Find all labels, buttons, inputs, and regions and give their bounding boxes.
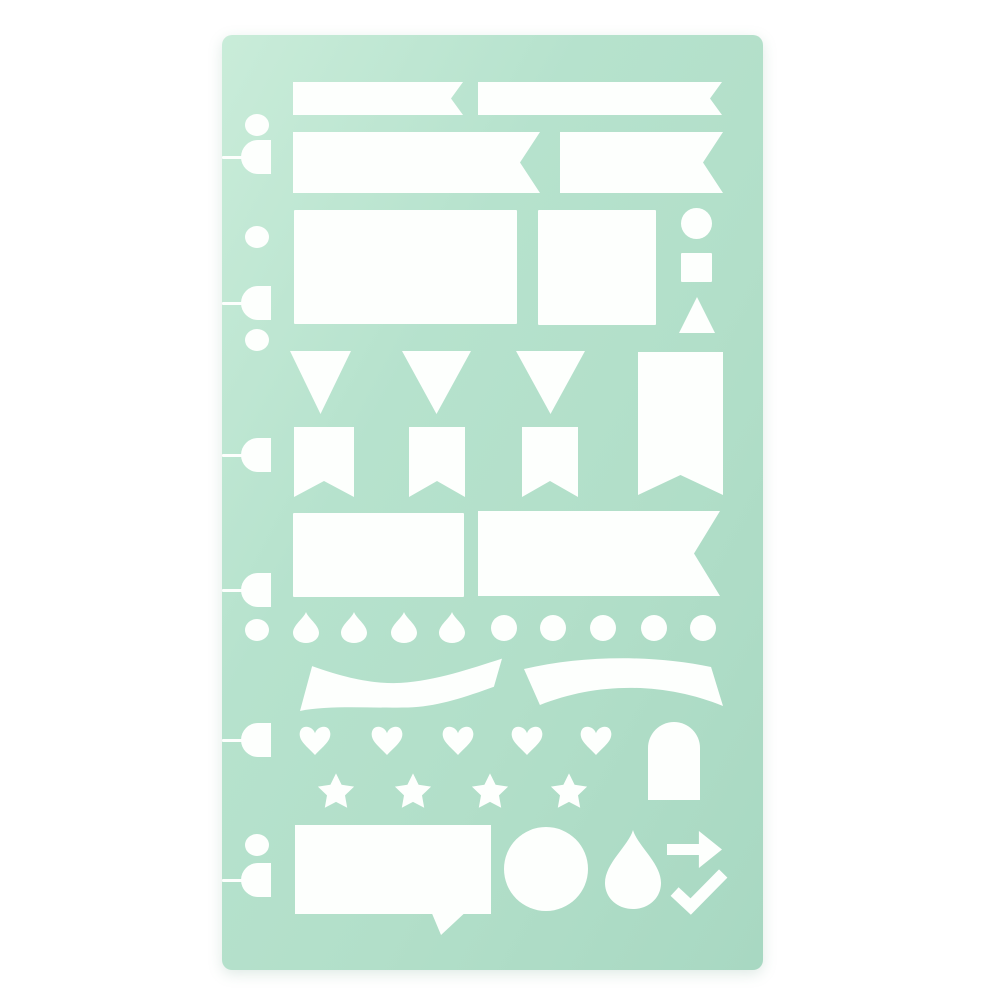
arrow-right-cutout bbox=[667, 831, 722, 868]
dot-1-cutout bbox=[491, 615, 517, 641]
binding-punch-circle-5 bbox=[245, 834, 269, 856]
binding-punch-circle-4 bbox=[245, 619, 269, 641]
banner-wide-right-cutout bbox=[560, 132, 723, 193]
dot-2-cutout bbox=[540, 615, 566, 641]
binding-punch-tab-6 bbox=[241, 863, 271, 897]
small-square-cutout bbox=[681, 253, 712, 282]
binding-punch-tab-4 bbox=[241, 573, 271, 607]
binding-punch-circle-1 bbox=[245, 114, 269, 136]
binding-punch-tab-3 bbox=[241, 438, 271, 472]
teardrop-small-3-cutout bbox=[391, 612, 417, 643]
pennant-triangle-1-cutout bbox=[290, 351, 351, 414]
binding-punch-tab-2 bbox=[241, 286, 271, 320]
banner-large-cutout bbox=[478, 511, 720, 596]
wave-ribbon-cutout bbox=[300, 657, 502, 711]
checkmark-cutout bbox=[674, 873, 723, 912]
teardrop-small-2-cutout bbox=[341, 612, 367, 643]
dot-3-cutout bbox=[590, 615, 616, 641]
swallowtail-flag-3-cutout bbox=[522, 427, 578, 497]
tall-swallowtail-flag-cutout bbox=[638, 352, 723, 495]
star-2-cutout bbox=[394, 773, 432, 809]
swallowtail-flag-2-cutout bbox=[409, 427, 465, 497]
dot-4-cutout bbox=[641, 615, 667, 641]
banner-wide-left-cutout bbox=[293, 132, 540, 193]
heart-2-cutout bbox=[370, 724, 404, 755]
binding-punch-circle-2 bbox=[245, 226, 269, 248]
small-circle-cutout bbox=[681, 208, 712, 239]
teardrop-small-4-cutout bbox=[439, 612, 465, 643]
teardrop-small-1-cutout bbox=[293, 612, 319, 643]
pennant-triangle-2-cutout bbox=[402, 351, 471, 414]
binding-punch-tab-1 bbox=[241, 140, 271, 174]
stencil-sheet bbox=[222, 35, 763, 970]
rectangle-medium-cutout bbox=[538, 210, 656, 325]
teardrop-large-cutout bbox=[605, 830, 661, 909]
arc-ribbon-cutout bbox=[524, 658, 723, 708]
binding-punch-tab-5 bbox=[241, 723, 271, 757]
circle-large-cutout bbox=[504, 827, 588, 911]
heart-1-cutout bbox=[298, 724, 332, 755]
product-photo bbox=[0, 0, 1000, 1000]
heart-3-cutout bbox=[441, 724, 475, 755]
swallowtail-flag-1-cutout bbox=[294, 427, 354, 497]
star-3-cutout bbox=[471, 773, 509, 809]
pennant-triangle-3-cutout bbox=[516, 351, 585, 414]
binding-punch-circle-3 bbox=[245, 329, 269, 351]
dot-5-cutout bbox=[690, 615, 716, 641]
banner-strip-left-cutout bbox=[293, 82, 463, 115]
banner-strip-right-cutout bbox=[478, 82, 722, 115]
arch-cutout bbox=[648, 722, 700, 800]
rectangle-large-cutout bbox=[294, 210, 517, 324]
rectangle-wide-cutout bbox=[293, 513, 464, 597]
heart-5-cutout bbox=[579, 724, 613, 755]
heart-4-cutout bbox=[510, 724, 544, 755]
star-4-cutout bbox=[550, 773, 588, 809]
small-triangle-cutout bbox=[679, 297, 715, 333]
speech-bubble-cutout bbox=[295, 825, 491, 935]
star-1-cutout bbox=[317, 773, 355, 809]
